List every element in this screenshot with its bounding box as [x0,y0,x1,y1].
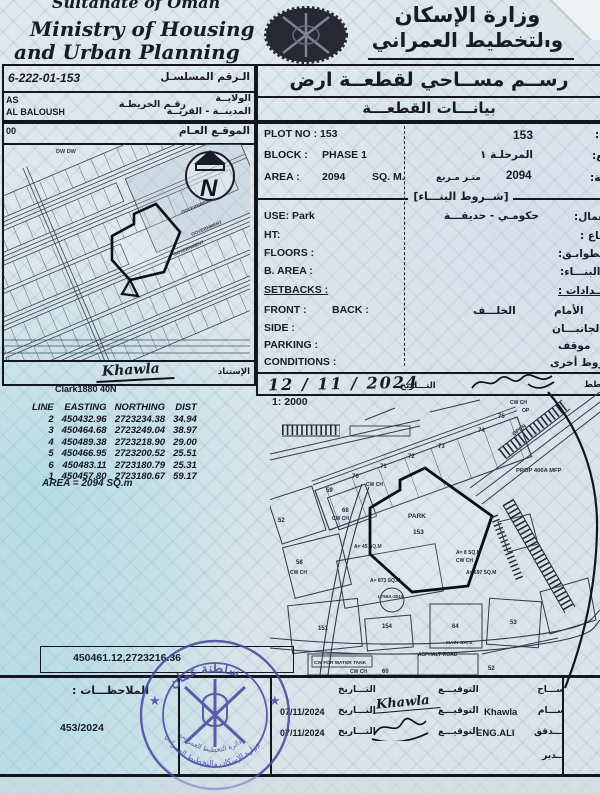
use-label: USE: Park [264,210,315,222]
role-director: المـــدير [542,751,562,761]
north-arrow-icon: N [186,150,234,202]
front-label-ar: الأمام [554,305,584,317]
date-label-ar: التـــاريخ [400,381,436,391]
ht-label: HT: [264,229,280,241]
scanned-krooki-document: Sultanate of Oman Ministry of Housing an… [0,0,600,794]
svg-text:OP: OP [522,408,530,414]
svg-text:DW DW: DW DW [56,149,77,155]
sig-label-row1: التوقيـــع [438,685,479,695]
parking-label-ar: موقف [558,340,590,352]
svg-text:58: 58 [296,560,303,566]
floors-label-ar: عدد الطوابـق: [558,248,600,260]
floors-label: FLOORS : [264,247,314,259]
svg-text:74: 74 [478,428,485,434]
col-dist: DIST [169,402,201,414]
checker-name: ENG.ALI [476,728,515,739]
block-label: BLOCK : [264,149,308,161]
svg-text:53: 53 [510,620,517,626]
role-draughtsman: الرســـام [538,706,562,716]
back-label-ar: الخلـــف [473,305,516,317]
barea-label-ar: نسبة البنـــاء: [560,266,600,278]
svg-text:N: N [200,175,218,202]
svg-text:154: 154 [382,624,393,630]
stamp-emblem-icon [185,679,245,747]
svg-text:71: 71 [380,464,387,470]
table-row: 5450466.952723200.5225.51 [28,448,201,460]
draughtsman-name: Khawla [484,707,517,718]
plot-no-value: 153 [320,128,338,140]
table-header-row: LINE EASTING NORTHING DIST [28,402,201,414]
table-row: 4450489.382723218.9029.00 [28,437,201,449]
side-label-ar: الجانبـــان [552,323,600,335]
document-subtitle: بيانـــات القطعـــة [258,99,600,117]
svg-text:LT56A-2019: LT56A-2019 [378,594,404,599]
scan-edge-strip [0,777,600,794]
svg-text:72: 72 [408,454,415,460]
block-value: PHASE 1 [322,149,367,161]
svg-text:153: 153 [413,529,424,536]
ministry-title-en-2: and Urban Planning [14,40,240,64]
village-label: المدينــة - القريــة [167,106,251,117]
svg-text:★: ★ [149,693,161,708]
sig-label-row3: التوقيـــع [438,727,479,737]
signature-block: التـــاريخ التوقيـــع المســـاح 07/11/20… [270,675,562,775]
panel-divider [404,126,405,366]
svg-text:59: 59 [326,488,333,494]
document-title: رســم مســاحي لقطعــة ارض [258,69,600,91]
front-label: FRONT : [264,304,307,316]
planner-label-ar: المخطط [584,380,600,390]
role-checker: المــــدقق [534,727,562,737]
wilaya-value: AS [6,95,19,105]
block-label-ar: المربع: [592,150,600,162]
svg-text:CW CH: CW CH [290,570,307,576]
official-stamp: سلطنة عمان وزارة الإسكان والتخطيط العمرا… [133,633,297,794]
village-value: AL BALOUSH [6,107,65,117]
svg-text:151: 151 [318,626,329,632]
svg-text:ASPHALT ROAD: ASPHALT ROAD [418,652,458,658]
svg-text:سلطنة عمان: سلطنة عمان [166,660,242,691]
ministry-title-ar-2: والتخطيط العمراني [365,28,570,52]
area-value-ar-side: 2094 [506,170,532,182]
ministry-title-en-1: Ministry of Housing [30,17,255,41]
svg-text:68: 68 [342,508,349,514]
table-row: 3450464.682723249.0438.97 [28,425,201,437]
sheet-number-partial: 00 [6,126,16,136]
area-value: 2094 [322,171,345,183]
svg-text:★: ★ [269,693,281,708]
svg-text:A= 8 SQ.M: A= 8 SQ.M [456,550,481,556]
page-fold-corner [542,0,600,40]
draughtsman-signature: Khawla [371,692,440,714]
svg-text:CW FOR WATER TANK: CW FOR WATER TANK [314,660,367,666]
area-label: AREA : [264,171,300,183]
datum-value: Clark1880 40N [55,384,117,394]
location-map-drawing: GOVERNMENT GOVERNMENT GOVERNMENT DW DW N [4,144,250,360]
side-label: SIDE : [264,322,295,334]
plot-no-value-ar-side: 153 [513,128,533,142]
document-number: 453/2024 [60,722,104,734]
barea-label: B. AREA : [264,265,313,277]
col-northing: NORTHING [111,402,170,414]
role-surveyor: المســـاح [537,685,562,695]
conditions-label-ar: شروط أخرى [550,357,600,369]
page-curl-edge [540,390,600,690]
svg-text:52: 52 [488,666,495,672]
building-conditions-header: [شــروط البنـــاء] [408,190,514,203]
conditions-label: CONDITIONS : [264,356,336,368]
wilaya-label: الولايــة [215,93,251,104]
svg-text:A= 697 SQ.M: A= 697 SQ.M [466,570,496,576]
plot-no-label-ar: رقم القطعة: [595,129,600,141]
surveyor-signature: Khawla [96,360,175,383]
back-label: BACK : [332,304,369,316]
svg-text:دائرة التخطيط العمراني: دائرة التخطيط العمراني [179,732,243,754]
svg-text:CW CH: CW CH [332,516,349,522]
svg-text:CW CH: CW CH [456,558,473,564]
setbacks-label: SETBACKS : [264,284,328,296]
use-label-ar: الاستعمال: [574,211,600,223]
sig-label-row2: التوقيـــع [438,706,479,716]
use-value-ar: حكومـي - حديقـــة [444,210,560,222]
date-label-row1: التـــاريخ [338,685,376,695]
table-row: 2450432.962723234.3834.94 [28,414,201,426]
block-value-ar: المرحلـة ١ [480,149,570,161]
svg-text:75: 75 [498,414,505,420]
oman-emblem-icon [263,5,349,65]
coordinates-table: LINE EASTING NORTHING DIST 2450432.96272… [28,402,201,483]
col-easting: EASTING [58,402,111,414]
svg-text:CW CH: CW CH [510,400,527,406]
area-unit-ar: متـر مـربع [436,173,481,183]
svg-text:PARK: PARK [408,513,426,520]
svg-text:73: 73 [438,444,445,450]
svg-text:64: 64 [452,624,459,630]
setbacks-label-ar: الارتـــدادات : [558,285,600,297]
location-map-panel: 00 الموقـع العـام [2,120,256,386]
datum-label: الإستناد [218,367,250,377]
col-line: LINE [28,402,58,414]
svg-text:70: 70 [352,474,359,480]
area-label-ar: المساحة: [590,172,600,184]
serial-number: 6-222-01-153 [8,71,80,85]
plot-no-label: PLOT NO : [264,128,320,140]
country-title-en: Sultanate of Oman [52,0,220,12]
checker-signature [368,715,432,741]
serial-label: الـرقم المسلسـل [160,71,250,83]
svg-text:52: 52 [278,518,285,524]
table-row: 6450483.112723180.7925.31 [28,460,201,472]
reference-box: 6-222-01-153 الـرقم المسلسـل AS الولايــ… [2,64,256,124]
parking-label: PARKING : [264,339,318,351]
plot-data-panel: PLOT NO : 153 153 رقم القطعة: BLOCK : PH… [256,120,600,396]
title-box: رســم مســاحي لقطعــة ارض بيانـــات القط… [256,64,600,124]
location-map-header: الموقـع العـام [179,125,250,137]
ht-label-ar: الارتفـــاع : [580,230,600,242]
area-note: AREA = 2094 SQ.m [42,478,133,489]
area-unit: SQ. M. [372,171,405,183]
header-underline [368,58,574,60]
ministry-title-ar-1: وزارة الإسكان [370,3,565,27]
